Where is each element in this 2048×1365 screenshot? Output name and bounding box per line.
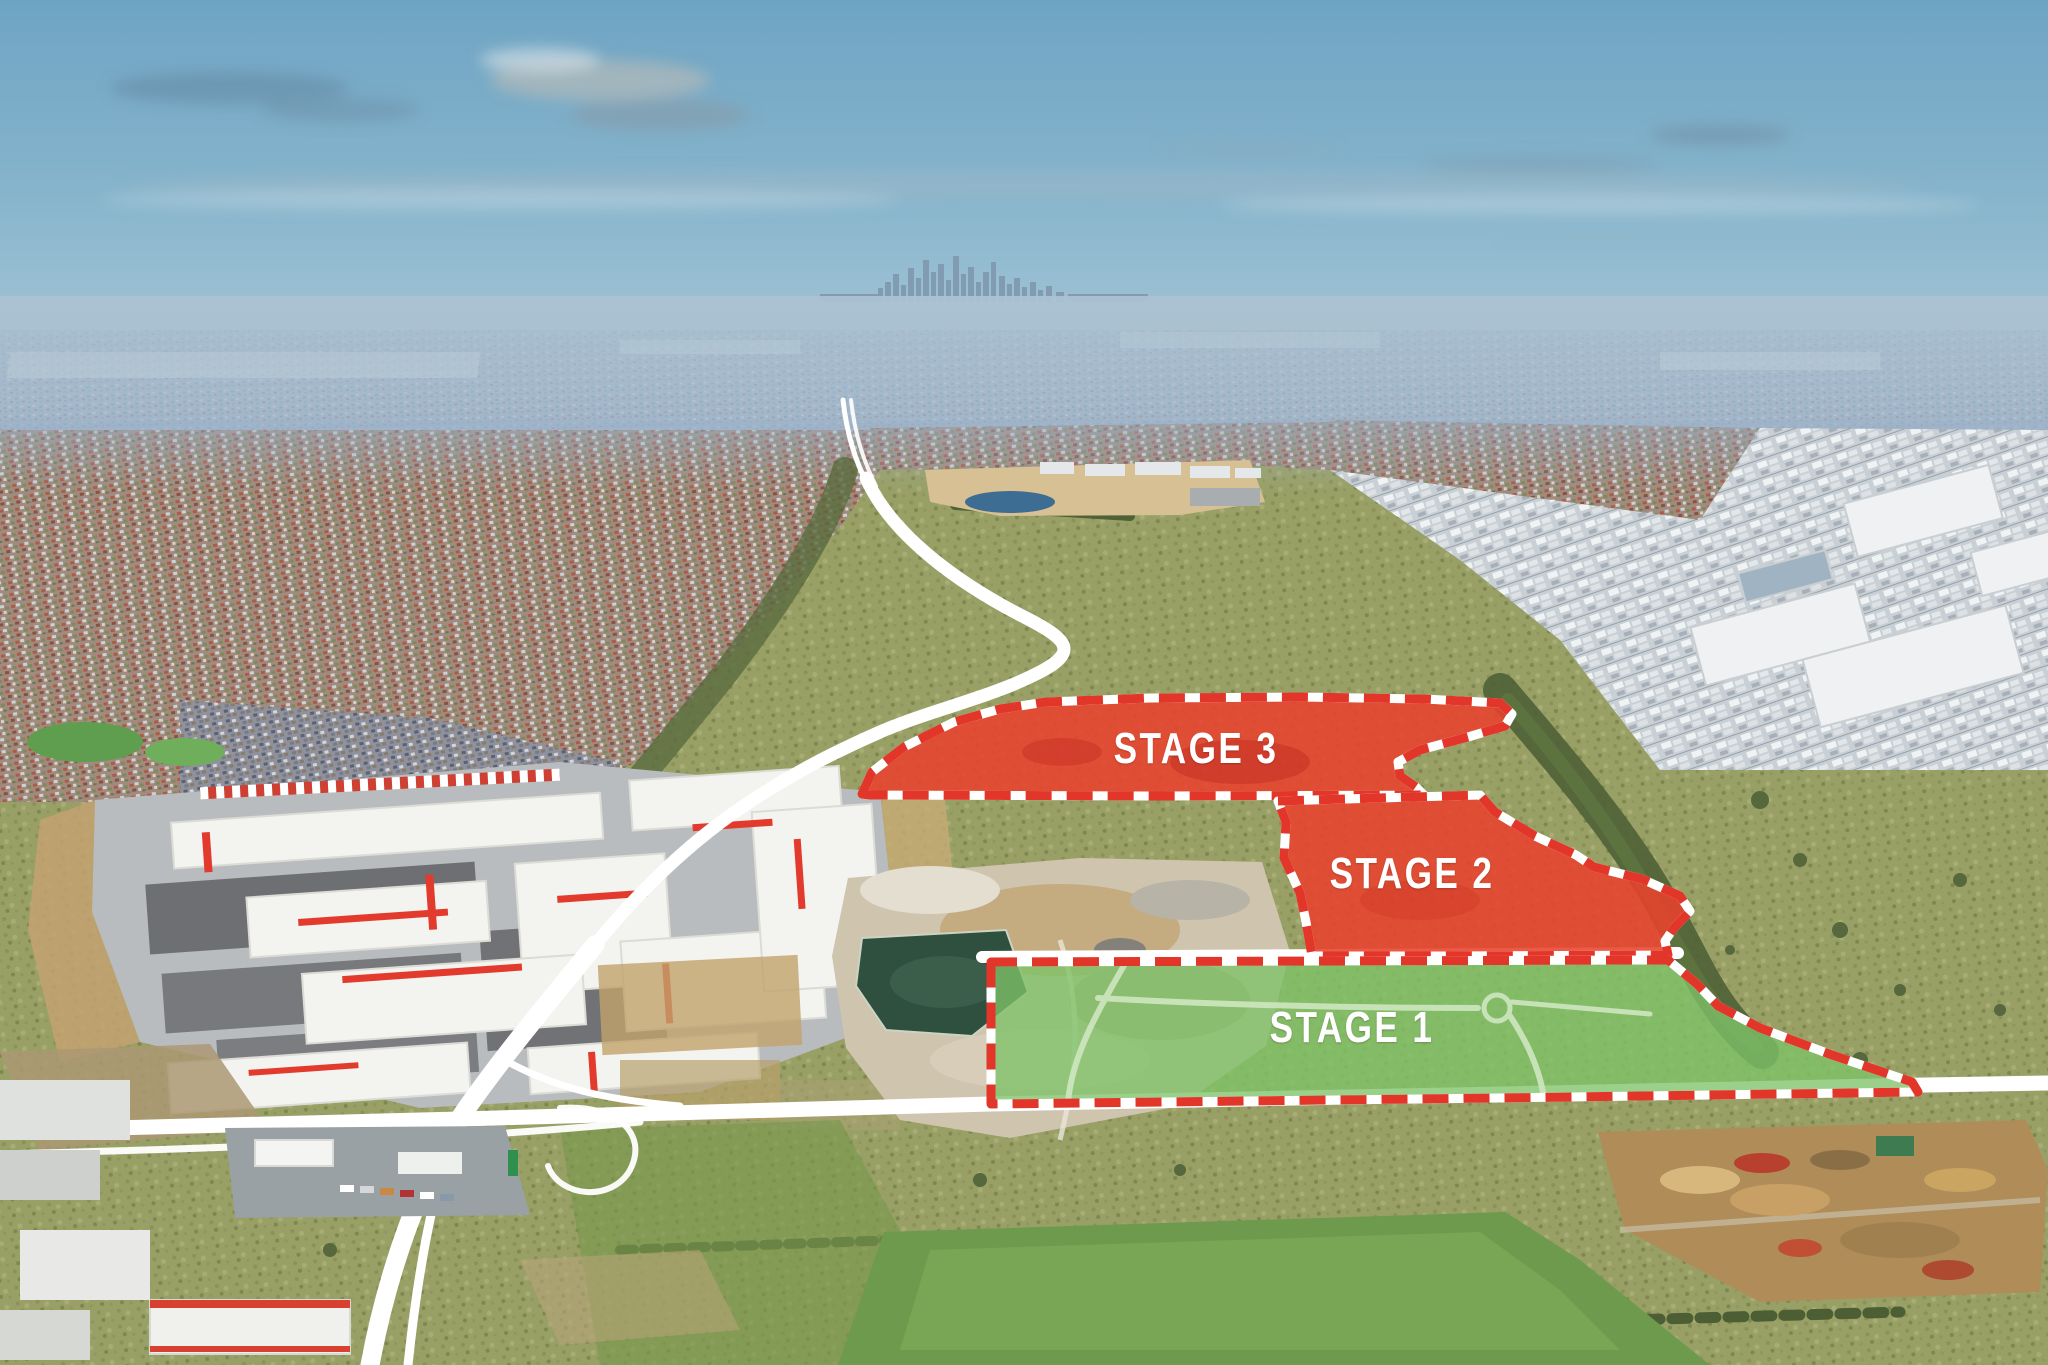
red-striped-warehouse (150, 1300, 350, 1354)
sports-oval-2 (145, 738, 225, 766)
stage-1-label: STAGE 1 (1270, 1003, 1435, 1053)
aerial-masterplan-photo: STAGE 3 STAGE 2 STAGE 1 (0, 0, 2048, 1365)
works-pad (1190, 488, 1260, 506)
green-shed (1876, 1136, 1914, 1156)
distant-bay (1500, 222, 2048, 248)
aerial-scene-canvas (0, 0, 2048, 1365)
red-pile (1734, 1153, 1790, 1173)
stage-2-label: STAGE 2 (1330, 849, 1495, 899)
sports-oval (27, 722, 143, 762)
quarry-lake (965, 491, 1055, 513)
truck-stop (225, 1126, 530, 1218)
stage-3-label: STAGE 3 (1114, 724, 1279, 774)
